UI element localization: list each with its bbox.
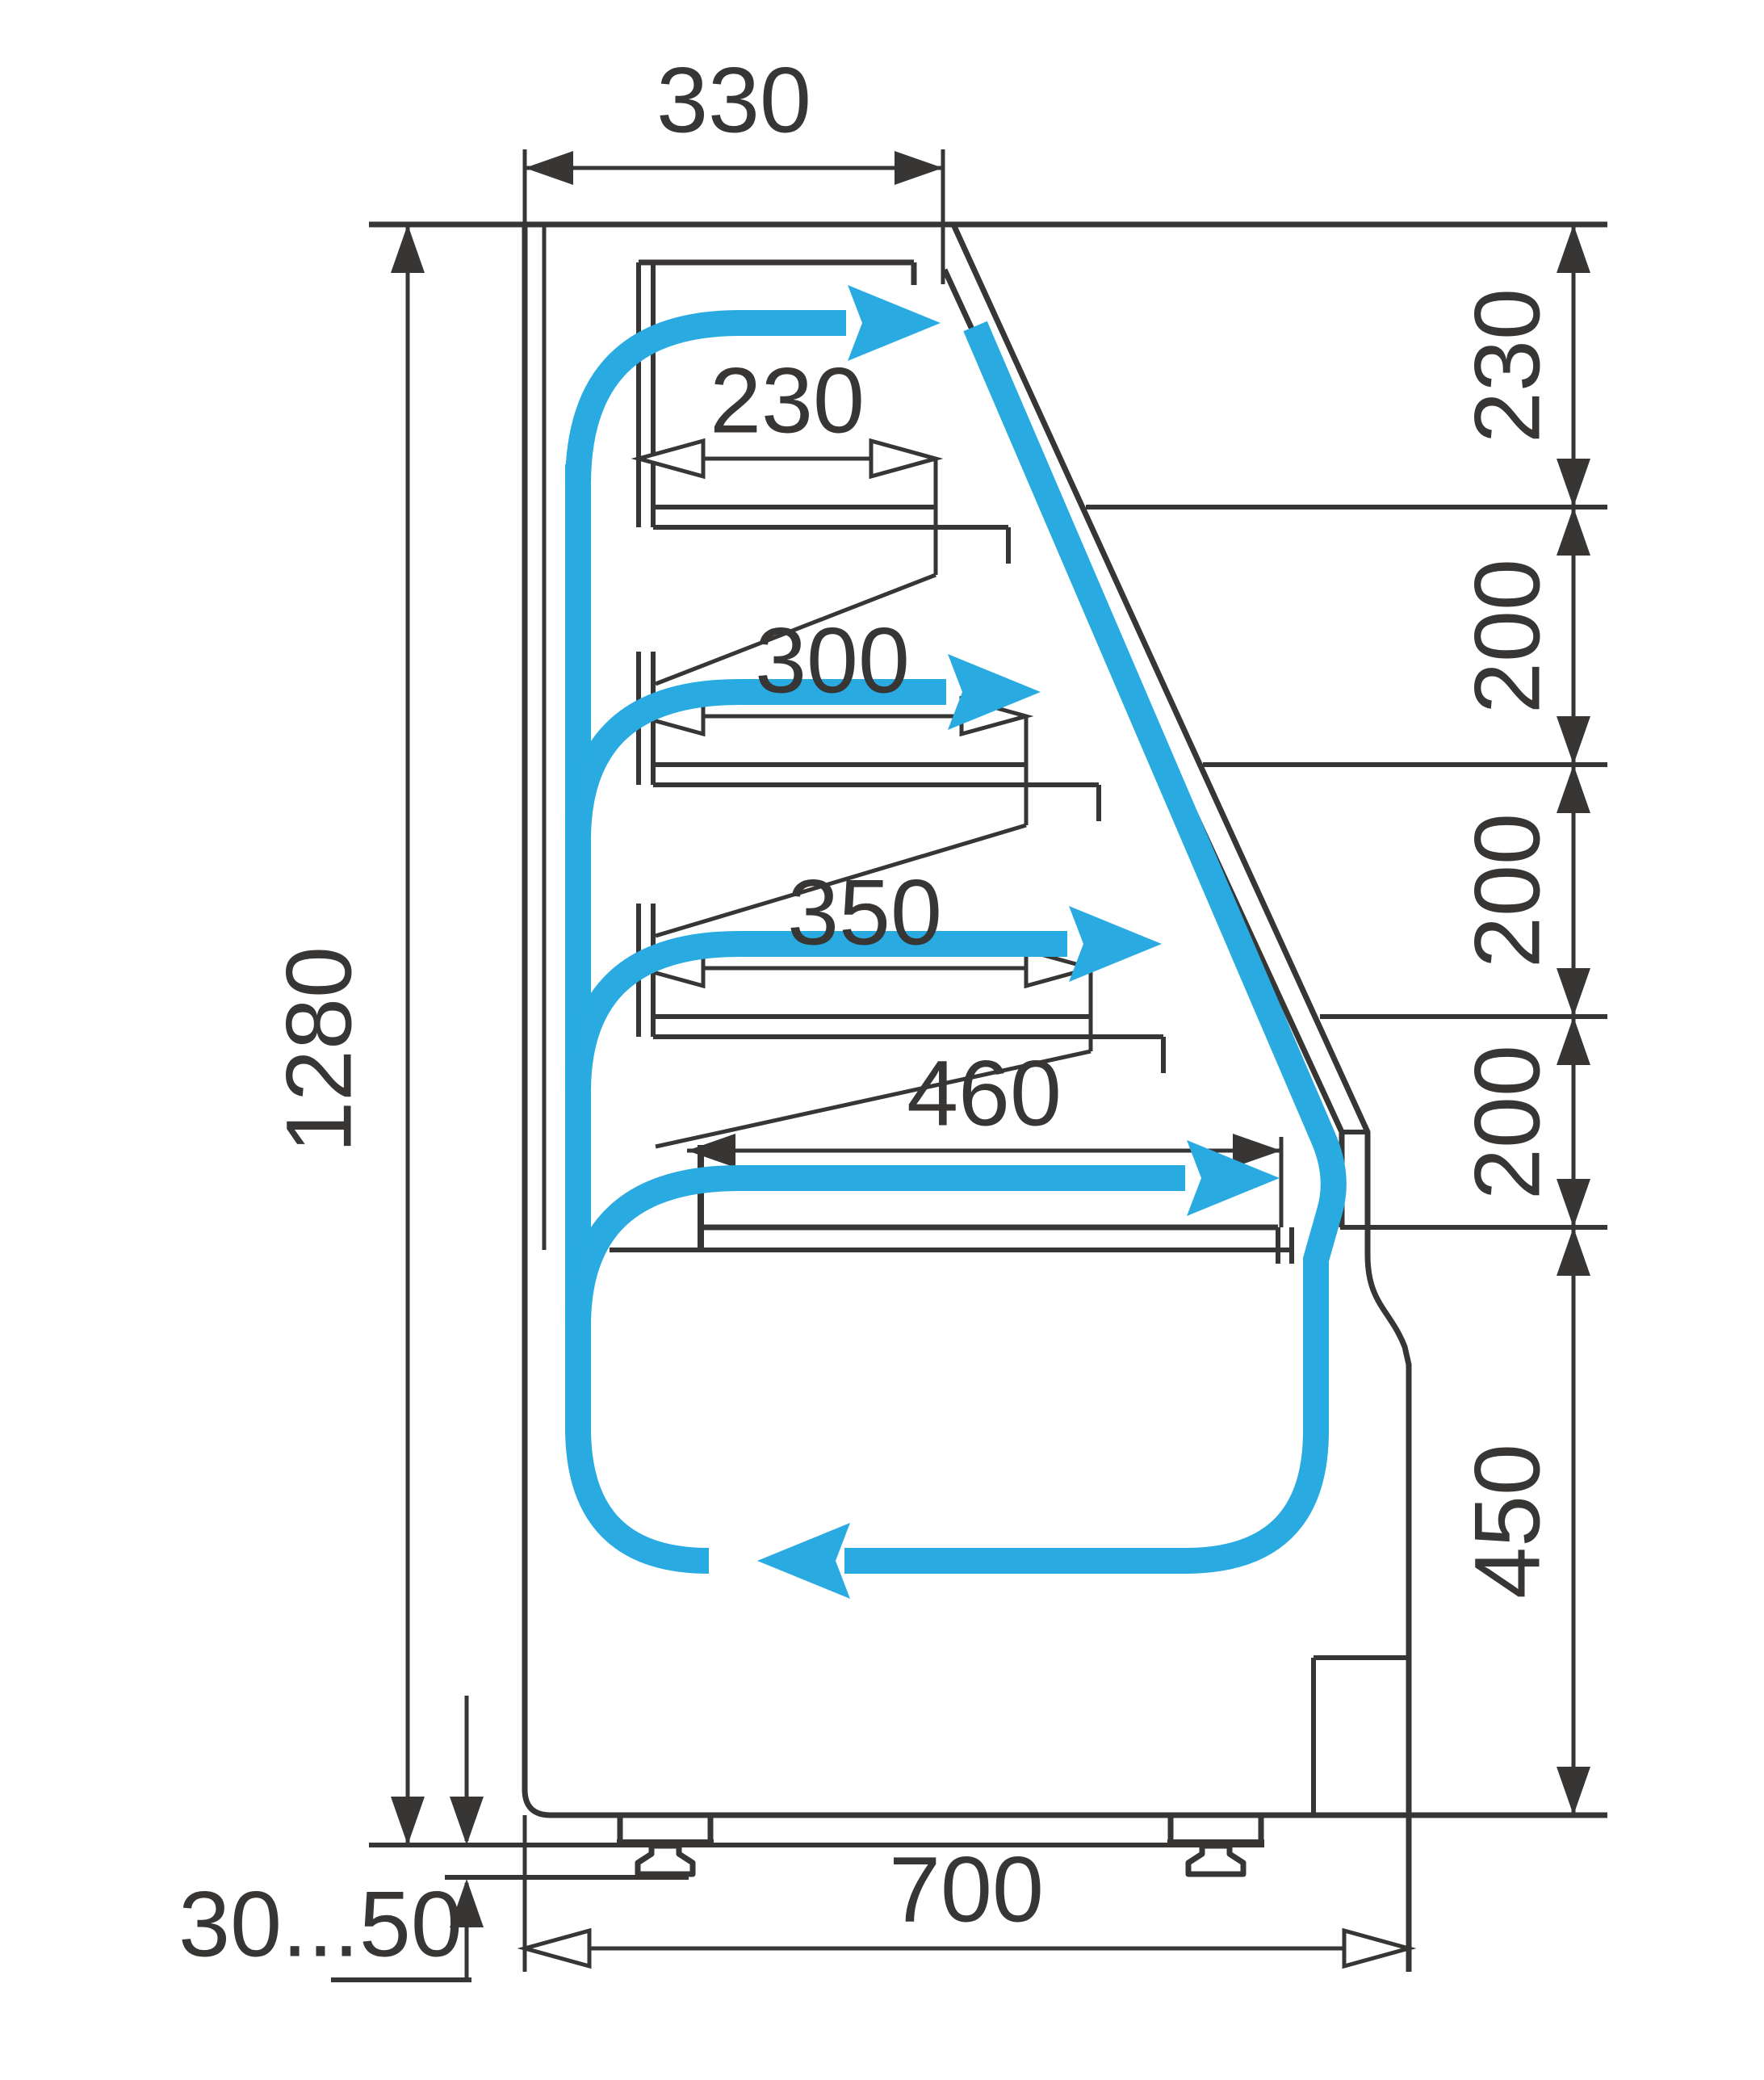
dim-200-tier2: 200 [1456, 559, 1559, 714]
dim-arrow-base-bottom [1557, 1767, 1590, 1815]
display-case-cross-section-diagram: 33023030035046070030...50128023020020020… [0, 0, 1764, 2080]
air-arrowhead-shelf3 [1069, 906, 1162, 982]
dim-200-tier4: 200 [1456, 1045, 1559, 1200]
dim-30-50-legs: 30...50 [178, 1872, 463, 1976]
arrow-700-right [1344, 1931, 1409, 1966]
arrow-700-left [525, 1931, 589, 1966]
dim-300-shelf2: 300 [755, 609, 910, 712]
dim-arrow-tier2-bottom [1557, 716, 1590, 765]
dim-arrow-tier3-bottom [1557, 968, 1590, 1017]
dim-arrow-tier2-top [1557, 507, 1590, 556]
dim-230-shelf1: 230 [710, 349, 865, 452]
dim-200-tier3: 200 [1456, 813, 1559, 968]
dim-350-shelf3: 350 [787, 861, 942, 964]
foot-right-pad [1188, 1846, 1243, 1874]
dim-230-tier1: 230 [1456, 288, 1559, 443]
arrow-230-left [639, 441, 703, 476]
air-arrowhead-return [757, 1523, 850, 1599]
dim-460-well: 460 [907, 1042, 1062, 1145]
dim-arrow-tier4-bottom [1557, 1179, 1590, 1227]
dim-arrow-tier1-top [1557, 224, 1590, 273]
arrow-legs-down [450, 1797, 484, 1845]
dim-arrow-tier1-bottom [1557, 459, 1590, 507]
dim-330-top: 330 [656, 48, 811, 152]
technical-drawing-canvas: 33023030035046070030...50128023020020020… [0, 0, 1764, 2080]
arrow-230-right [871, 441, 936, 476]
arrow-1280-top [391, 224, 425, 273]
dim-700-base: 700 [889, 1838, 1044, 1941]
arrow-330-right [895, 151, 943, 185]
dim-450-base: 450 [1456, 1444, 1559, 1599]
dim-arrow-base-top [1557, 1227, 1590, 1276]
dim-arrow-tier4-top [1557, 1017, 1590, 1065]
foot-left-pad [638, 1846, 693, 1874]
dim-1280-height: 1280 [267, 946, 371, 1153]
arrow-330-left [525, 151, 573, 185]
dim-arrow-tier3-top [1557, 765, 1590, 813]
arrow-1280-bottom [391, 1797, 425, 1845]
